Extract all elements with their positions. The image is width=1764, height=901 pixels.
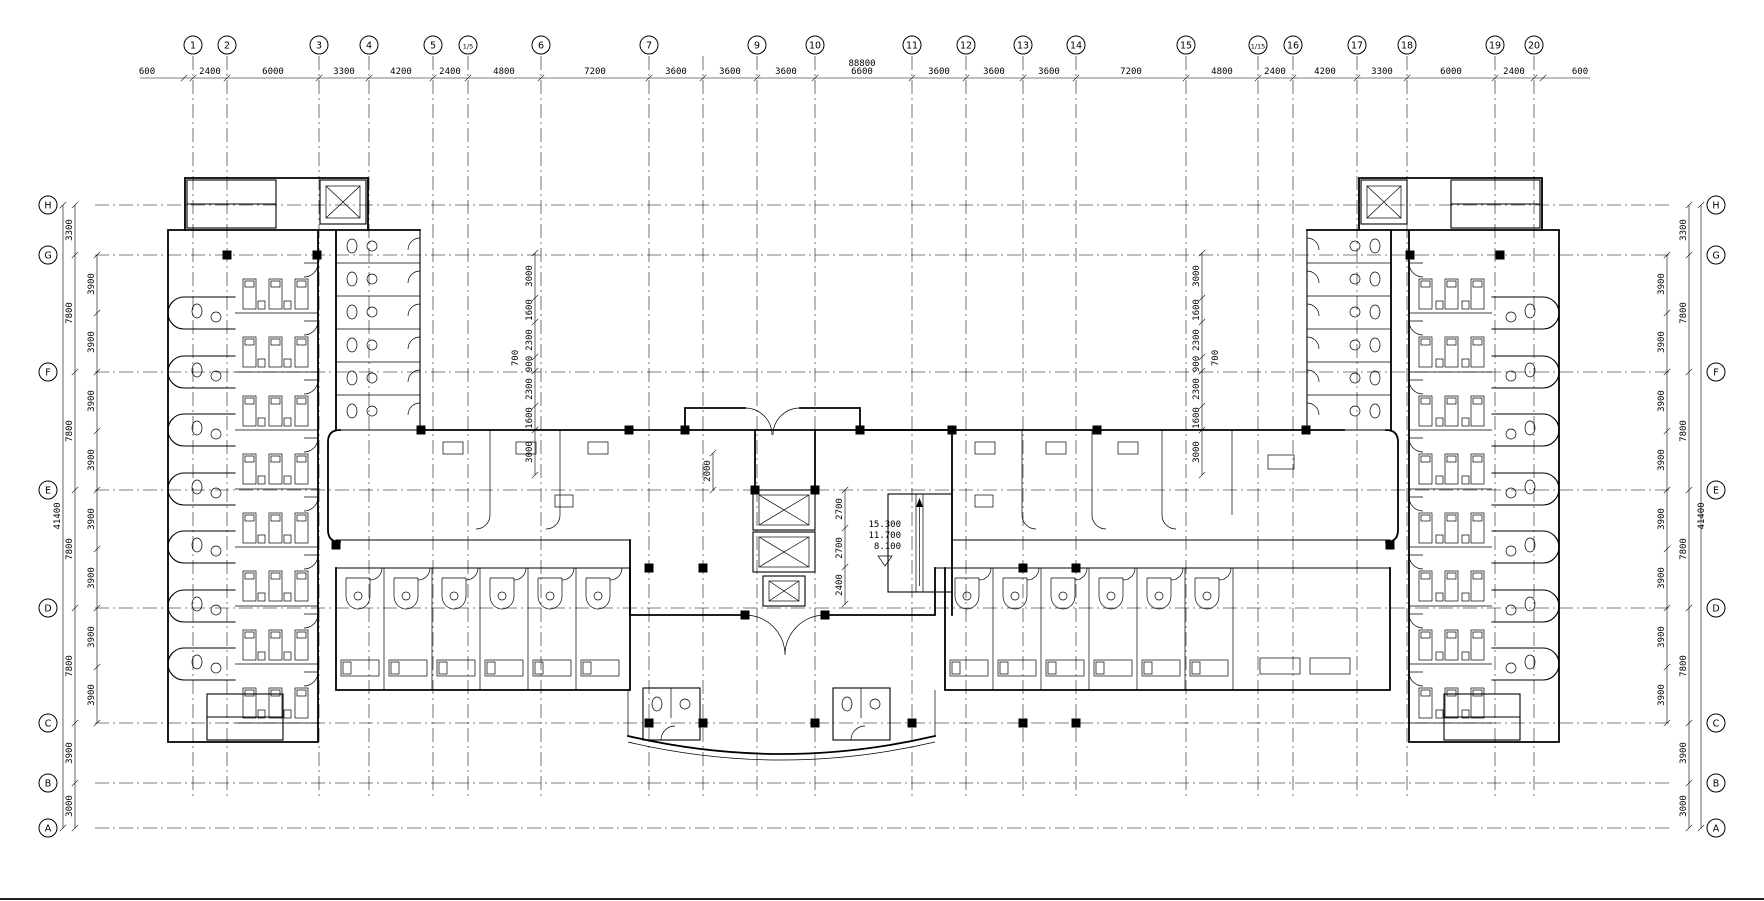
top-total-dimension: 88800 <box>848 59 875 69</box>
grid-axis-label: 5 <box>430 41 436 52</box>
toilet <box>347 338 357 352</box>
nightstand <box>284 301 291 309</box>
toilet <box>192 304 202 318</box>
left-inner-dim-label: 3900 <box>87 390 97 412</box>
top-dim-label: 3600 <box>1038 67 1060 77</box>
toilet-door-arc <box>851 726 865 740</box>
column <box>948 426 957 435</box>
grid-axis-label: 6 <box>538 41 544 52</box>
grid-row-label-right: B <box>1713 779 1720 790</box>
mid-left-dim-label: 1600 <box>525 299 535 321</box>
shower-pod <box>394 578 418 609</box>
grid-axis-label: 2 <box>224 41 230 52</box>
bottom-bar <box>336 568 1390 690</box>
right-outer-dim-label: 7800 <box>1679 655 1689 677</box>
elevation-1: 15.300 <box>868 520 901 530</box>
bed-horizontal <box>1094 660 1132 676</box>
shower-pod <box>1099 578 1123 609</box>
wing-shell <box>168 230 420 742</box>
middle-room-furniture <box>443 442 1294 507</box>
left-inner-dim-label: 3900 <box>87 331 97 353</box>
room-door-arc <box>304 263 318 277</box>
toilet <box>192 363 202 377</box>
right-outer-dim-label: 7800 <box>1679 302 1689 324</box>
bottom-room-partitions <box>384 568 1233 690</box>
bed-pillow <box>297 515 306 521</box>
elevation-triangle-icon <box>878 556 892 566</box>
floor-plan-canvas: 123451/56791011121314151/151617181920HHG… <box>0 0 1764 901</box>
bed-pillow <box>245 339 254 345</box>
left-inner-dim-label: 3900 <box>87 273 97 295</box>
bath-door-arc <box>408 403 420 415</box>
grid-axis-label: 12 <box>960 41 972 52</box>
bed-pillow <box>487 662 495 674</box>
column <box>223 251 232 260</box>
grid-axis-label: 17 <box>1351 41 1363 52</box>
toilet <box>192 655 202 669</box>
bed-pillow <box>391 662 399 674</box>
sink <box>211 312 221 322</box>
bed-horizontal <box>581 660 619 676</box>
grid-axis-label: 7 <box>646 41 652 52</box>
bed-horizontal <box>1260 658 1300 674</box>
nightstand <box>284 535 291 543</box>
inner-bath-fixtures <box>347 238 420 418</box>
bed-pillow <box>952 662 960 674</box>
shower-drain <box>402 592 410 600</box>
bath-door-arc <box>408 337 420 349</box>
room-door-arc <box>304 614 318 628</box>
ensuite-pod <box>168 590 235 622</box>
top-dim-label: 2400 <box>1264 67 1286 77</box>
grid-axis-label: 18 <box>1401 41 1413 52</box>
grid-axis-label: 16 <box>1287 41 1299 52</box>
column <box>908 719 917 728</box>
right-inner-dim-label: 3900 <box>1657 273 1667 295</box>
top-dim-label: 6000 <box>262 67 284 77</box>
bed-pillow <box>271 515 280 521</box>
grid-axis-label: 13 <box>1017 41 1029 52</box>
column <box>811 486 820 495</box>
shower-pod <box>442 578 466 609</box>
sink <box>211 429 221 439</box>
left-outer-dim-label: 3900 <box>65 742 75 764</box>
mid-right-dim-label: 2300 <box>1192 329 1202 351</box>
top-dim-label: 3600 <box>775 67 797 77</box>
middle-room-doors <box>476 515 1176 529</box>
bed-pillow <box>245 515 254 521</box>
right-wing <box>1307 178 1559 742</box>
grid-axis-label: 1/5 <box>463 43 473 51</box>
nightstand <box>258 359 265 367</box>
room-door-arc <box>370 568 382 580</box>
top-dim-label: 3600 <box>928 67 950 77</box>
core-annotations: 2000 15.300 11.700 8.100 <box>703 453 901 604</box>
sink <box>367 274 377 284</box>
nightstand <box>258 652 265 660</box>
bed-pillow <box>245 690 254 696</box>
toilet <box>347 305 357 319</box>
grid-axis-label: 20 <box>1528 41 1540 52</box>
bed-pillow <box>271 398 280 404</box>
nightstand <box>284 418 291 426</box>
room-door-arc <box>1027 568 1039 580</box>
shower-pod <box>1003 578 1027 609</box>
ensuite-pod <box>168 414 235 446</box>
bed-pillow <box>343 662 351 674</box>
mid-right-dim-label: 1600 <box>1192 299 1202 321</box>
core-dim-label: 2700 <box>835 537 845 559</box>
room-door-arc <box>610 568 622 580</box>
column <box>1019 719 1028 728</box>
bed-pillow <box>1048 662 1056 674</box>
grid-axis-label: 14 <box>1070 41 1082 52</box>
grid-axis-label: 1/15 <box>1251 43 1266 51</box>
column <box>811 719 820 728</box>
room-door-arc <box>1123 568 1135 580</box>
left-top-elevator <box>320 180 366 224</box>
bed-pillow <box>583 662 591 674</box>
right-outer-dim-label: 3300 <box>1679 219 1689 241</box>
ensuite-pod <box>168 648 235 680</box>
bed-pillow <box>297 281 306 287</box>
corridor-walls <box>336 540 1390 568</box>
mid-right-dim-label: 3000 <box>1192 441 1202 463</box>
column <box>1093 426 1102 435</box>
grid-row-label-right: H <box>1712 201 1719 212</box>
room-door-arc <box>979 568 991 580</box>
mid-left-extra-dim: 700 <box>511 350 521 366</box>
floor-plan-drawing: 123451/56791011121314151/151617181920HHG… <box>0 0 1764 901</box>
elevation-2: 11.700 <box>868 531 901 541</box>
grid-axis-label: 15 <box>1180 41 1192 52</box>
room-door-arc <box>1171 568 1183 580</box>
mid-right-dim-label: 2300 <box>1192 378 1202 400</box>
shower-pod <box>490 578 514 609</box>
bed-pillow <box>271 573 280 579</box>
mid-left-dim-label: 1600 <box>525 407 535 429</box>
bed-horizontal <box>437 660 475 676</box>
central-core <box>628 408 952 760</box>
bed-pillow <box>245 398 254 404</box>
sink <box>367 340 377 350</box>
bed-pillow <box>439 662 447 674</box>
nightstand <box>258 593 265 601</box>
toilet <box>347 239 357 253</box>
column <box>856 426 865 435</box>
top-dim-label: 3300 <box>1371 67 1393 77</box>
left-outer-dim-label: 7800 <box>65 538 75 560</box>
grid-axis-label: 4 <box>366 41 372 52</box>
grid-row-label-right: G <box>1712 251 1719 262</box>
bed-horizontal <box>1310 658 1350 674</box>
column <box>1072 564 1081 573</box>
column <box>741 611 750 620</box>
toilet <box>652 697 662 711</box>
left-total-dimension: 41400 <box>53 502 63 529</box>
shower-drain <box>450 592 458 600</box>
mid-right-dim-label: 900 <box>1192 356 1202 372</box>
ensuite-pod <box>168 473 235 505</box>
grid-row-label-left: A <box>45 824 52 835</box>
bed-horizontal <box>389 660 427 676</box>
grid-row-label-left: B <box>45 779 52 790</box>
bed-pillow <box>245 632 254 638</box>
room-door-arc <box>304 380 318 394</box>
column <box>417 426 426 435</box>
shower-drain <box>546 592 554 600</box>
column <box>645 719 654 728</box>
right-inner-dim-label: 3900 <box>1657 331 1667 353</box>
shower-pod <box>955 578 979 609</box>
mid-right-dim-label: 3000 <box>1192 265 1202 287</box>
column <box>751 486 760 495</box>
top-dim-label: 6000 <box>1440 67 1462 77</box>
room-door-arc <box>304 672 318 686</box>
shower-drain <box>498 592 506 600</box>
right-inner-dim-label: 3900 <box>1657 449 1667 471</box>
grid-row-label-left: D <box>44 604 51 615</box>
grid-row-label-right: C <box>1713 719 1720 730</box>
shower-pod <box>1195 578 1219 609</box>
left-wing <box>168 178 420 742</box>
inner-bath-column <box>336 230 420 430</box>
shower-pod <box>538 578 562 609</box>
toilet <box>192 421 202 435</box>
left-inner-dim-label: 3900 <box>87 684 97 706</box>
toilet-door-arc <box>661 726 675 740</box>
bed-pillow <box>245 456 254 462</box>
sink <box>367 241 377 251</box>
left-outer-dim-label: 7800 <box>65 655 75 677</box>
left-inner-dim-label: 3900 <box>87 626 97 648</box>
bed-pillow <box>297 456 306 462</box>
right-outer-dim-label: 7800 <box>1679 420 1689 442</box>
room-door-arc <box>514 568 526 580</box>
bed-horizontal <box>341 660 379 676</box>
bed-pillow <box>1096 662 1104 674</box>
column <box>332 541 341 550</box>
right-outer-dim-label: 3000 <box>1679 795 1689 817</box>
right-inner-dim-label: 3900 <box>1657 684 1667 706</box>
right-inner-dim-label: 3900 <box>1657 567 1667 589</box>
column <box>645 564 654 573</box>
sink <box>211 663 221 673</box>
entrance-curved-wall-inner <box>628 690 935 760</box>
right-outer-dim-label: 7800 <box>1679 538 1689 560</box>
toilet <box>347 404 357 418</box>
room-door-arc <box>1219 568 1231 580</box>
nightstand <box>258 301 265 309</box>
bed-horizontal <box>1190 660 1228 676</box>
mid-left-dim-label: 2300 <box>525 378 535 400</box>
sink <box>367 373 377 383</box>
top-dim-label: 2400 <box>439 67 461 77</box>
room-door-arc <box>418 568 430 580</box>
bed-pillow <box>297 398 306 404</box>
column <box>625 426 634 435</box>
elevator-x-icon <box>759 495 809 525</box>
top-dim-label: 4200 <box>1314 67 1336 77</box>
top-dim-label: 4800 <box>1211 67 1233 77</box>
grid-axis-label: 1 <box>190 41 196 52</box>
room-door-arc <box>304 321 318 335</box>
ensuite-pod <box>168 531 235 563</box>
top-dim-label: 7200 <box>584 67 606 77</box>
left-outer-dim-label: 7800 <box>65 420 75 442</box>
left-outer-dim-label: 7800 <box>65 302 75 324</box>
column <box>699 719 708 728</box>
shower-drain <box>1059 592 1067 600</box>
bottom-room-contents <box>341 568 1350 676</box>
nightstand <box>284 359 291 367</box>
right-inner-dim-label: 3900 <box>1657 390 1667 412</box>
right-inner-dim-label: 3900 <box>1657 626 1667 648</box>
room-door-arc <box>304 497 318 511</box>
top-dim-label: 3600 <box>719 67 741 77</box>
toilet <box>842 697 852 711</box>
column <box>821 611 830 620</box>
bed-horizontal <box>950 660 988 676</box>
right-inner-dim-label: 3900 <box>1657 508 1667 530</box>
toilet <box>192 597 202 611</box>
middle-room-partitions <box>490 430 1232 515</box>
bed-pillow <box>297 632 306 638</box>
nightstand <box>284 652 291 660</box>
elevation-3: 8.100 <box>874 542 901 552</box>
top-dim-label: 2400 <box>199 67 221 77</box>
toilet-room <box>643 688 700 740</box>
column <box>313 251 322 260</box>
mid-left-dim-label: 900 <box>525 356 535 372</box>
shower-drain <box>1155 592 1163 600</box>
nightstand <box>284 593 291 601</box>
top-dim-label: 600 <box>1572 67 1588 77</box>
toilet <box>347 272 357 286</box>
sink <box>211 605 221 615</box>
toilet <box>192 480 202 494</box>
left-inner-dim-label: 3900 <box>87 508 97 530</box>
sink <box>680 699 690 709</box>
nightstand <box>258 535 265 543</box>
grid-row-label-right: E <box>1713 486 1719 497</box>
bath-door-arc <box>408 238 420 250</box>
sink <box>870 699 880 709</box>
sink <box>211 488 221 498</box>
toilet <box>192 538 202 552</box>
grid-axis-label: 10 <box>809 41 821 52</box>
column <box>1386 541 1395 550</box>
bed-pillow <box>1144 662 1152 674</box>
grid-axis-label: 3 <box>316 41 322 52</box>
bed-pillow <box>1000 662 1008 674</box>
shower-pod <box>346 578 370 609</box>
mid-right-extra-dim: 700 <box>1211 350 1221 366</box>
top-dim-label: 600 <box>139 67 155 77</box>
column <box>699 564 708 573</box>
top-dim-label: 4800 <box>493 67 515 77</box>
mid-right-dim-label: 1600 <box>1192 407 1202 429</box>
grid-row-label-right: F <box>1713 368 1718 379</box>
left-outer-dim-label: 3300 <box>65 219 75 241</box>
grid-row-label-left: F <box>45 368 50 379</box>
bottom-bar-shell <box>336 568 1390 690</box>
sink <box>367 307 377 317</box>
sink <box>211 546 221 556</box>
stair-direction-arrow <box>916 498 923 507</box>
left-inner-dim-label: 3900 <box>87 567 97 589</box>
dim-2000: 2000 <box>703 460 713 482</box>
structural-columns <box>223 251 1505 728</box>
bed-pillow <box>271 632 280 638</box>
column <box>1072 719 1081 728</box>
grid-row-label-left: H <box>44 201 51 212</box>
bed-horizontal <box>485 660 523 676</box>
bed-horizontal <box>1142 660 1180 676</box>
nightstand <box>258 476 265 484</box>
shower-pod <box>586 578 610 609</box>
bed-pillow <box>297 573 306 579</box>
mid-left-dim-label: 3000 <box>525 441 535 463</box>
right-total-dimension: 41400 <box>1697 502 1707 529</box>
middle-bar-top-wall <box>328 430 1398 542</box>
column <box>1302 426 1311 435</box>
bed-pillow <box>1192 662 1200 674</box>
core-north-door-arcs <box>745 408 800 435</box>
grid-axis-label: 11 <box>906 41 918 52</box>
room-door-arc <box>562 568 574 580</box>
middle-bar <box>328 430 1398 568</box>
top-dim-label: 3600 <box>665 67 687 77</box>
shower-drain <box>1203 592 1211 600</box>
nightstand <box>258 418 265 426</box>
toilet <box>347 371 357 385</box>
shower-pod <box>1147 578 1171 609</box>
top-dim-label: 3600 <box>983 67 1005 77</box>
grid-row-label-left: G <box>44 251 51 262</box>
grid-row-label-right: A <box>1713 824 1720 835</box>
column <box>1496 251 1505 260</box>
bed-horizontal <box>998 660 1036 676</box>
lobby-toilet-blocks <box>643 688 890 740</box>
room-door-arc <box>304 555 318 569</box>
bed-pillow <box>297 339 306 345</box>
toilet-room <box>833 688 890 740</box>
column <box>681 426 690 435</box>
shower-drain <box>354 592 362 600</box>
grid-axis-label: 19 <box>1489 41 1501 52</box>
shower-drain <box>1107 592 1115 600</box>
shower-drain <box>1011 592 1019 600</box>
elevator-x-icon <box>759 537 809 567</box>
guest-rooms <box>168 263 318 718</box>
shower-drain <box>594 592 602 600</box>
grid-axis-label: 9 <box>754 41 760 52</box>
grid-row-label-left: C <box>45 719 52 730</box>
bed-pillow <box>271 690 280 696</box>
bed-pillow <box>245 281 254 287</box>
shower-drain <box>963 592 971 600</box>
left-outer-dim-label: 3000 <box>65 795 75 817</box>
core-dim-label: 2400 <box>835 574 845 596</box>
nightstand <box>284 476 291 484</box>
room-door-arc <box>304 438 318 452</box>
core-walls <box>630 408 952 615</box>
mid-left-dim-label: 3000 <box>525 265 535 287</box>
top-dim-label: 7200 <box>1120 67 1142 77</box>
sink <box>211 371 221 381</box>
left-inner-dim-label: 3900 <box>87 449 97 471</box>
